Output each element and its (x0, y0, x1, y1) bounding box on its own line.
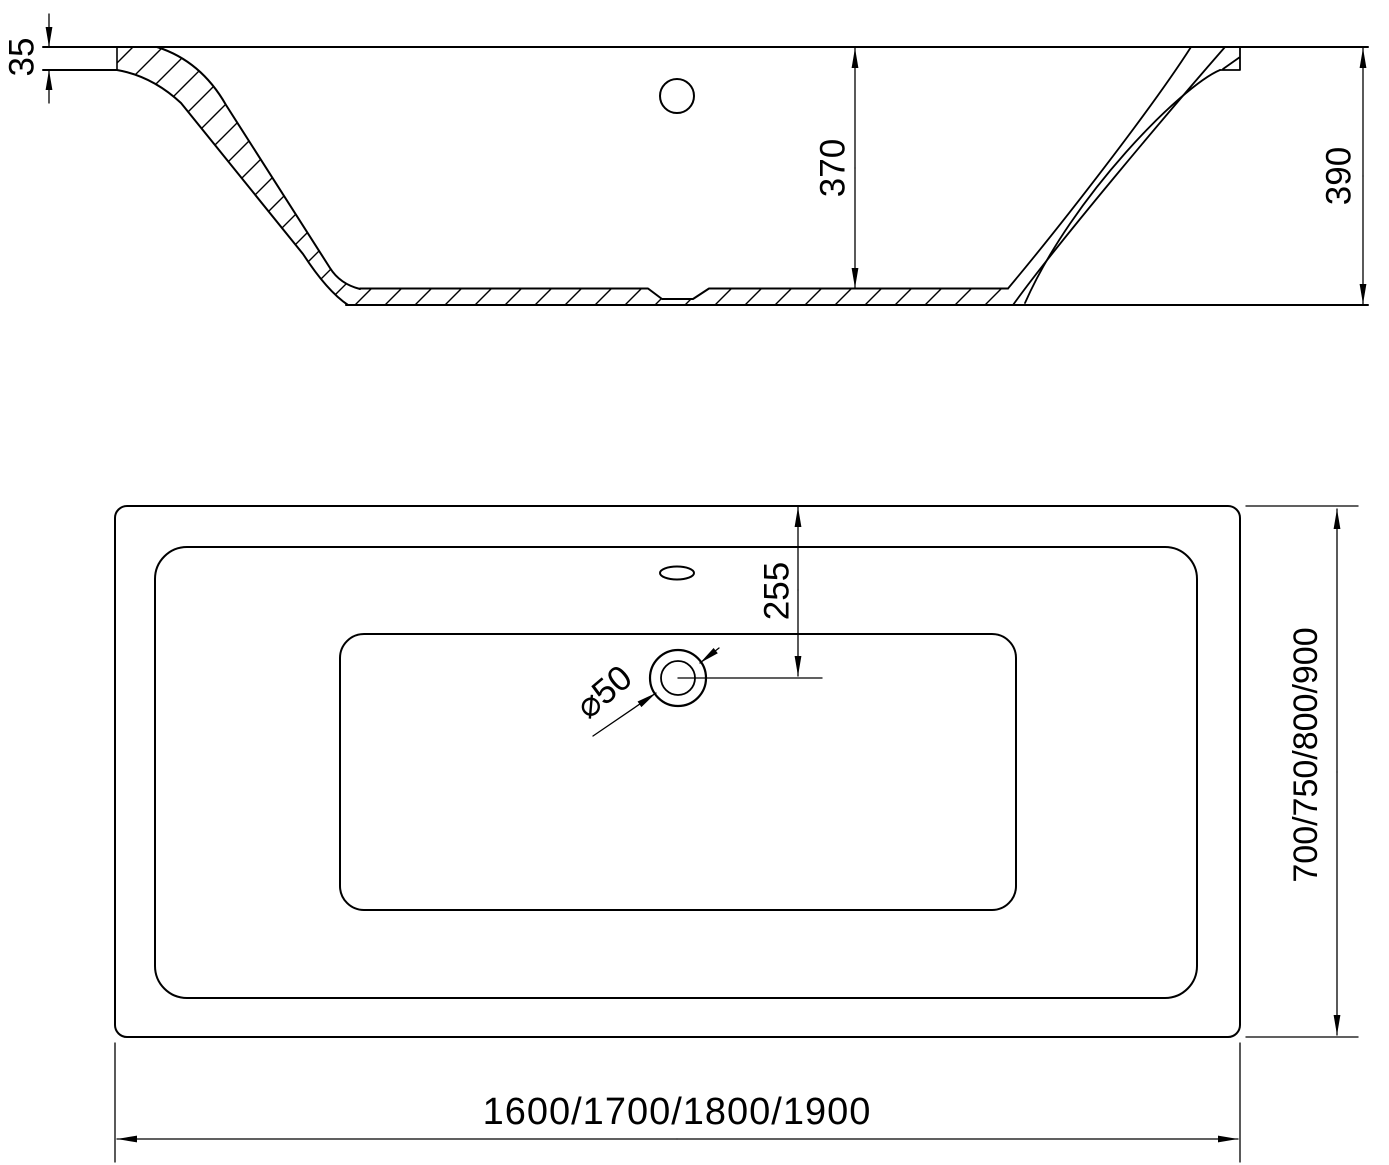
dim-label-drain-offset: 255 (760, 562, 795, 620)
plan-inner-rim (155, 547, 1197, 998)
dim-label-rim-thickness: 35 (5, 38, 40, 77)
section-right-wall-line-3 (1025, 70, 1220, 303)
plan-outer-rim (115, 506, 1240, 1037)
dim-label-overall-height: 390 (1322, 147, 1357, 205)
plan-overflow-hole (660, 567, 694, 580)
section-floor-hatch (348, 289, 1013, 305)
dim-label-width-variants: 700/750/800/900 (1289, 627, 1323, 882)
dim-label-inner-depth: 370 (816, 139, 851, 197)
section-right-wall-line-1 (1008, 47, 1191, 289)
section-right-wall-line-2 (1013, 47, 1225, 305)
section-left-wall-hatch (117, 47, 360, 305)
section-view (43, 14, 1368, 305)
bathtub-technical-drawing: 35 370 390 255 ⌀50 700/750/800/900 1600/… (0, 0, 1389, 1165)
section-left-wall-outer-edge (117, 70, 348, 305)
plan-basin-bottom (340, 634, 1016, 910)
dim-label-length-variants: 1600/1700/1800/1900 (483, 1093, 872, 1131)
section-overflow-hole (660, 79, 694, 113)
plan-view (115, 506, 1358, 1162)
drawing-linework (0, 0, 1389, 1165)
